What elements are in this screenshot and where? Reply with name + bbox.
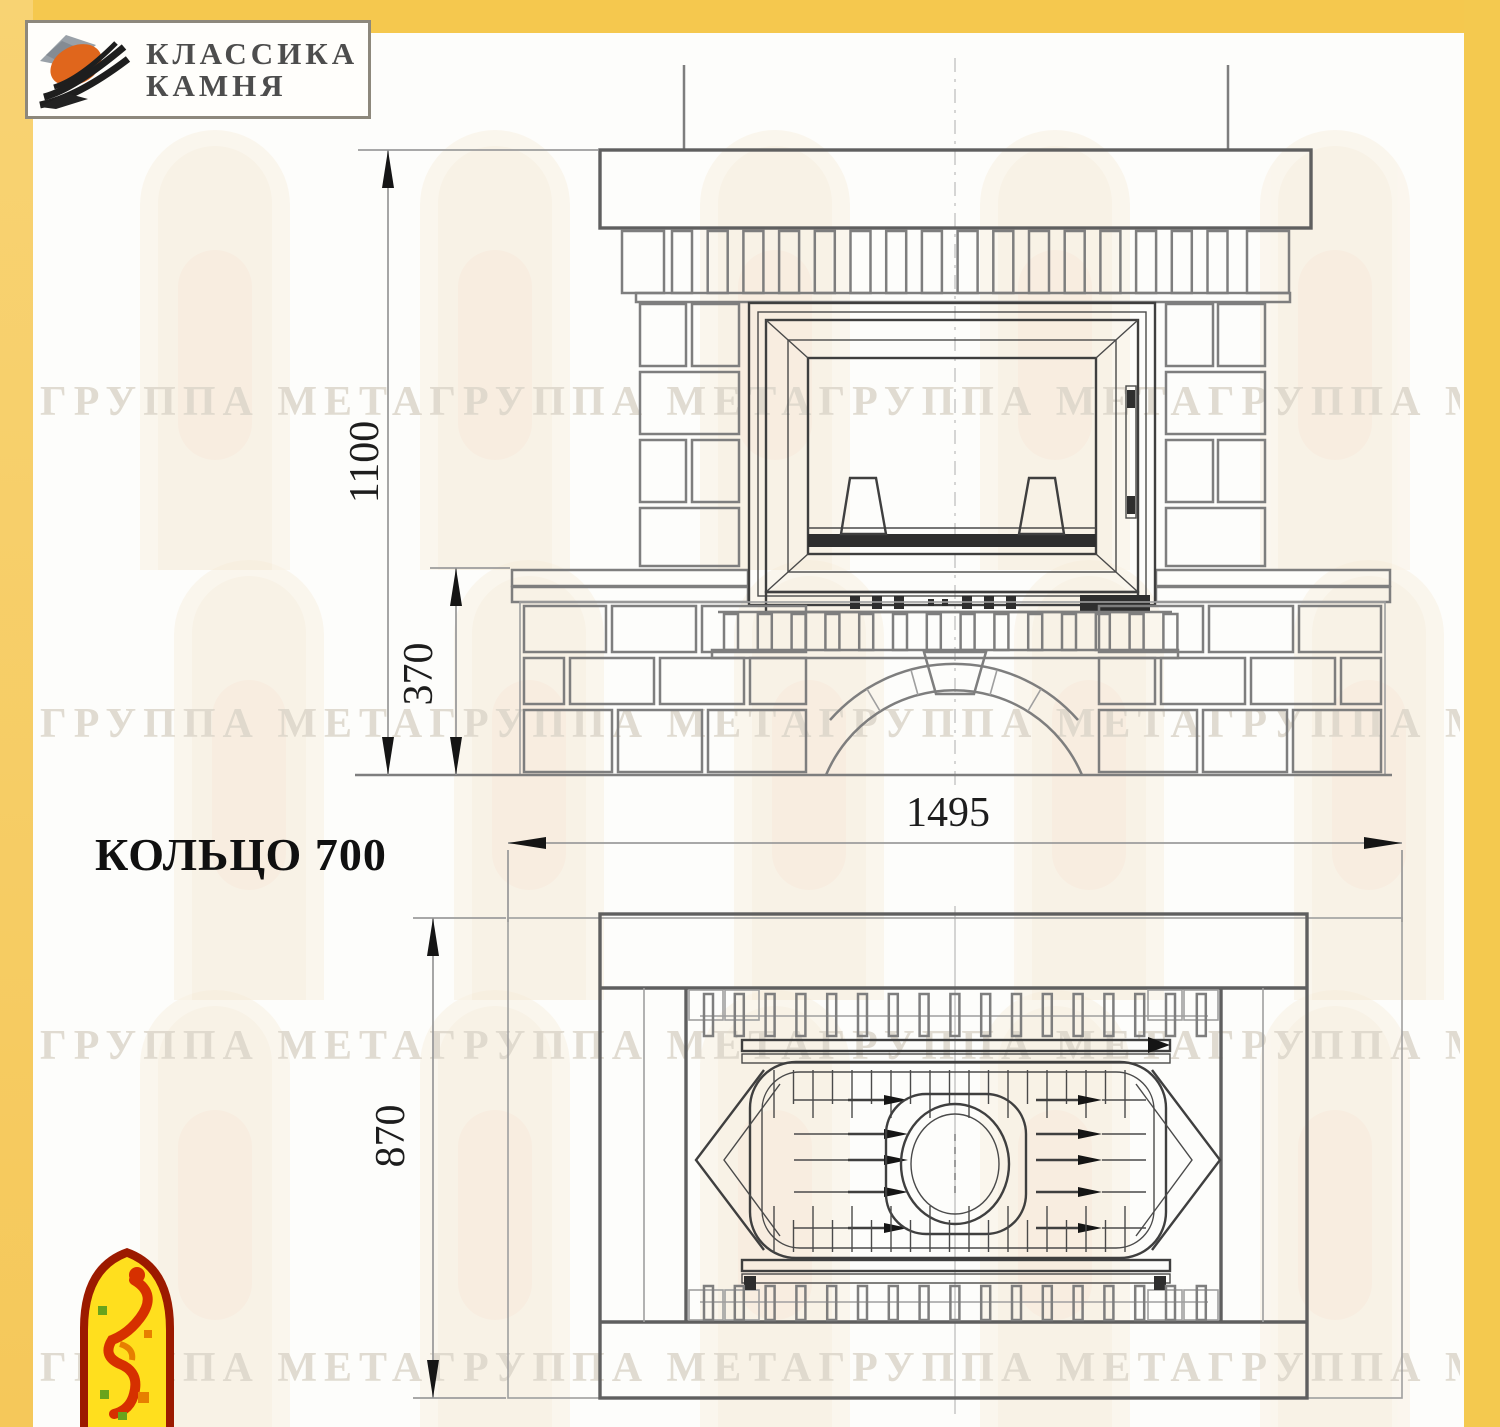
- andiron-right: [1019, 478, 1064, 534]
- brand-logo: КЛАССИКА КАМНЯ: [25, 20, 371, 119]
- dimension-value-depth: 870: [368, 1105, 414, 1168]
- stone-brand-icon: [36, 31, 132, 109]
- plan-dimensions: 1495 870: [368, 790, 1402, 1398]
- firebox-glass: [808, 358, 1096, 554]
- plan-view-drawing: [508, 906, 1402, 1414]
- bench-shelf: [512, 570, 1390, 602]
- firebox-outer-frame: [749, 303, 1155, 605]
- dentil-course-middle: [724, 614, 1177, 650]
- fireplace-technical-drawing: 1100 370: [0, 0, 1500, 1427]
- plan-rail-bottom: [742, 1260, 1170, 1271]
- brand-name-line2: КАМНЯ: [146, 70, 358, 102]
- brick-pilasters: [640, 304, 1265, 566]
- firebox-door: [766, 320, 1138, 592]
- model-title: КОЛЬЦО 700: [95, 828, 387, 881]
- dimension-value-height: 1100: [342, 421, 388, 503]
- dentil-rail: [636, 293, 1290, 302]
- firebox-insert: [749, 303, 1155, 612]
- page: ГРУППА МЕТАГРУППА МЕТАГРУППА МЕТАГРУППА …: [0, 0, 1500, 1427]
- plan-air-bars: [794, 1095, 1146, 1233]
- brand-name-line1: КЛАССИКА: [146, 38, 358, 70]
- arch-outer: [830, 664, 1078, 720]
- dentil-course-top: [672, 231, 1228, 293]
- dimension-value-width: 1495: [906, 790, 990, 836]
- plan-rail-top: [742, 1040, 1170, 1051]
- arch-inner: [826, 690, 1082, 775]
- front-elevation-drawing: [355, 58, 1392, 792]
- dimension-value-plinth: 370: [396, 643, 442, 706]
- mascot-arch-graphic: [74, 1242, 180, 1427]
- elevation-dimensions: 1100 370: [342, 150, 598, 775]
- plan-ring-frame: [886, 1094, 1026, 1234]
- plan-chevron-right: [1152, 1070, 1220, 1250]
- page-border-left: [0, 0, 33, 1427]
- andiron-left: [841, 478, 886, 534]
- page-border-right: [1464, 0, 1500, 1427]
- badge-plate: [1080, 595, 1150, 611]
- plan-chevron-left: [696, 1070, 764, 1250]
- grate-bar: [808, 534, 1096, 547]
- masonry-base: [520, 602, 1385, 775]
